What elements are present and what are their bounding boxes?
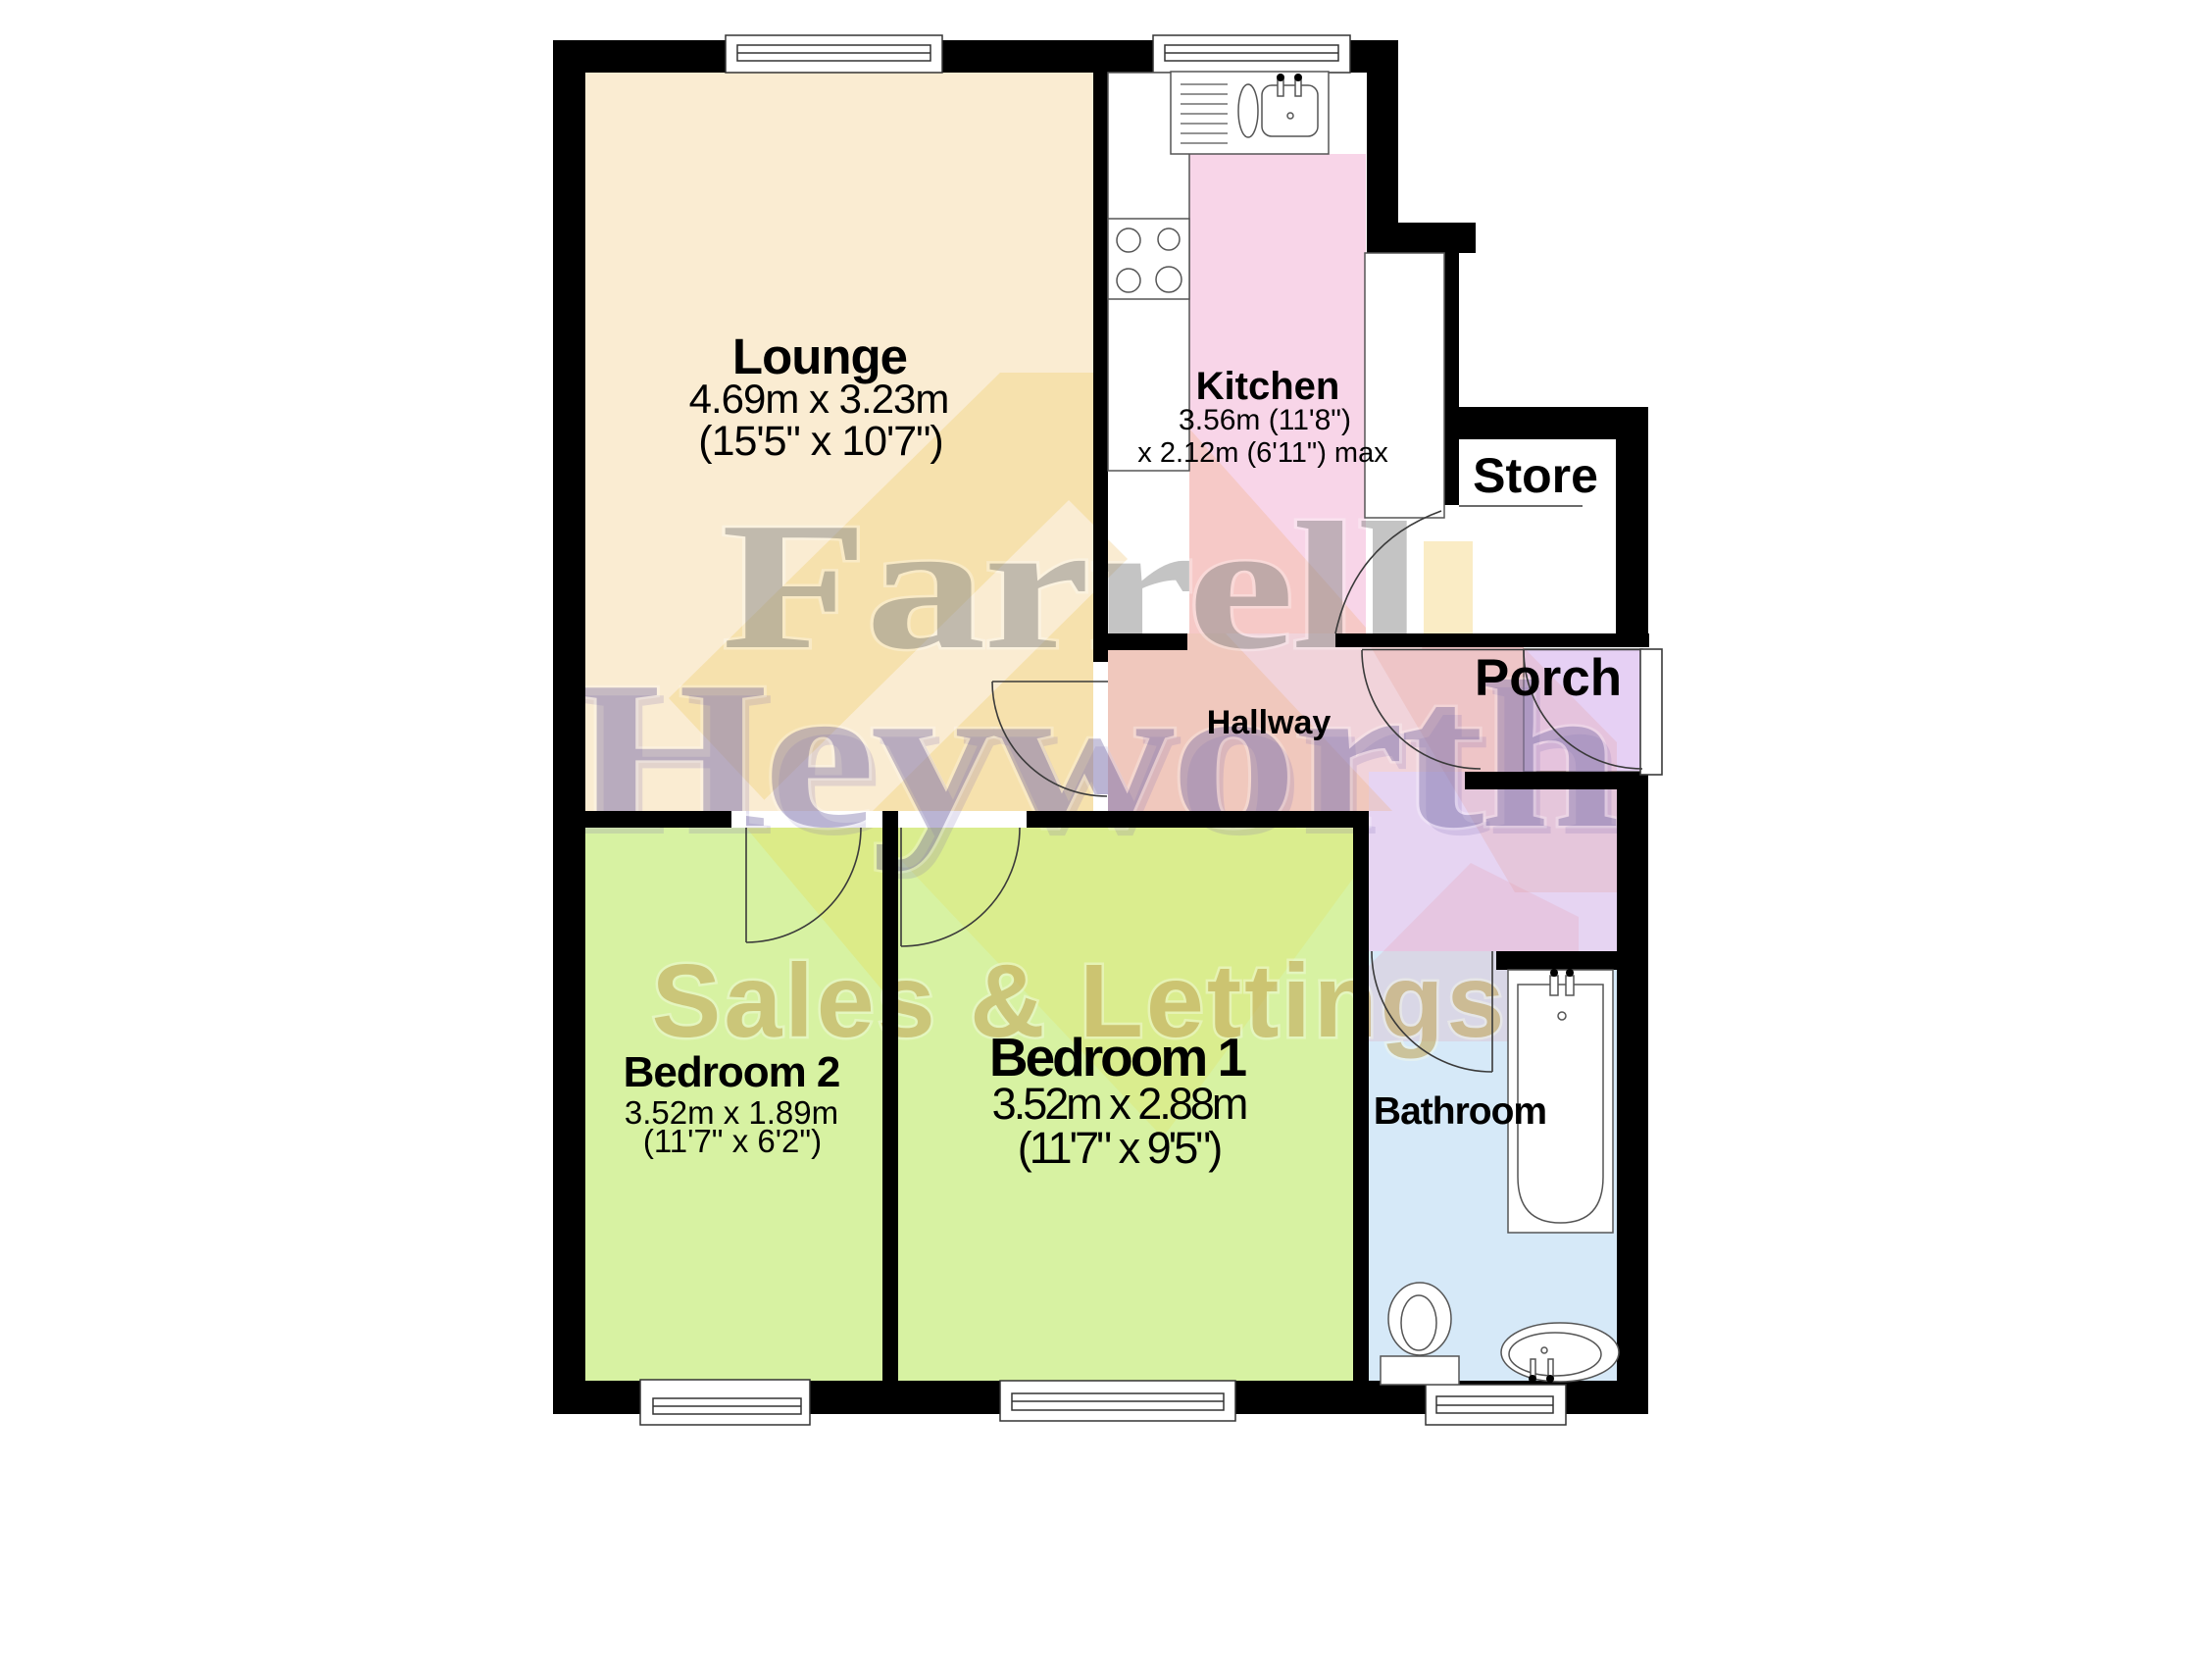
svg-text:Bathroom: Bathroom [1374, 1090, 1546, 1133]
svg-text:(11'7" x 6'2"): (11'7" x 6'2") [643, 1123, 822, 1159]
svg-text:4.69m x 3.23m: 4.69m x 3.23m [689, 376, 949, 422]
svg-text:3.56m (11'8"): 3.56m (11'8") [1179, 404, 1351, 436]
svg-text:x 2.12m (6'11") max: x 2.12m (6'11") max [1137, 437, 1388, 469]
svg-text:Kitchen: Kitchen [1196, 365, 1340, 408]
svg-text:Store: Store [1473, 448, 1598, 503]
svg-text:3.52m x 2.88m: 3.52m x 2.88m [992, 1079, 1246, 1129]
svg-text:(11'7" x 9'5"): (11'7" x 9'5") [1018, 1123, 1221, 1173]
svg-text:Bedroom 2: Bedroom 2 [624, 1048, 840, 1096]
svg-text:Porch: Porch [1475, 649, 1622, 707]
svg-text:(15'5" x 10'7"): (15'5" x 10'7") [698, 418, 942, 465]
svg-text:Hallway: Hallway [1207, 704, 1332, 741]
